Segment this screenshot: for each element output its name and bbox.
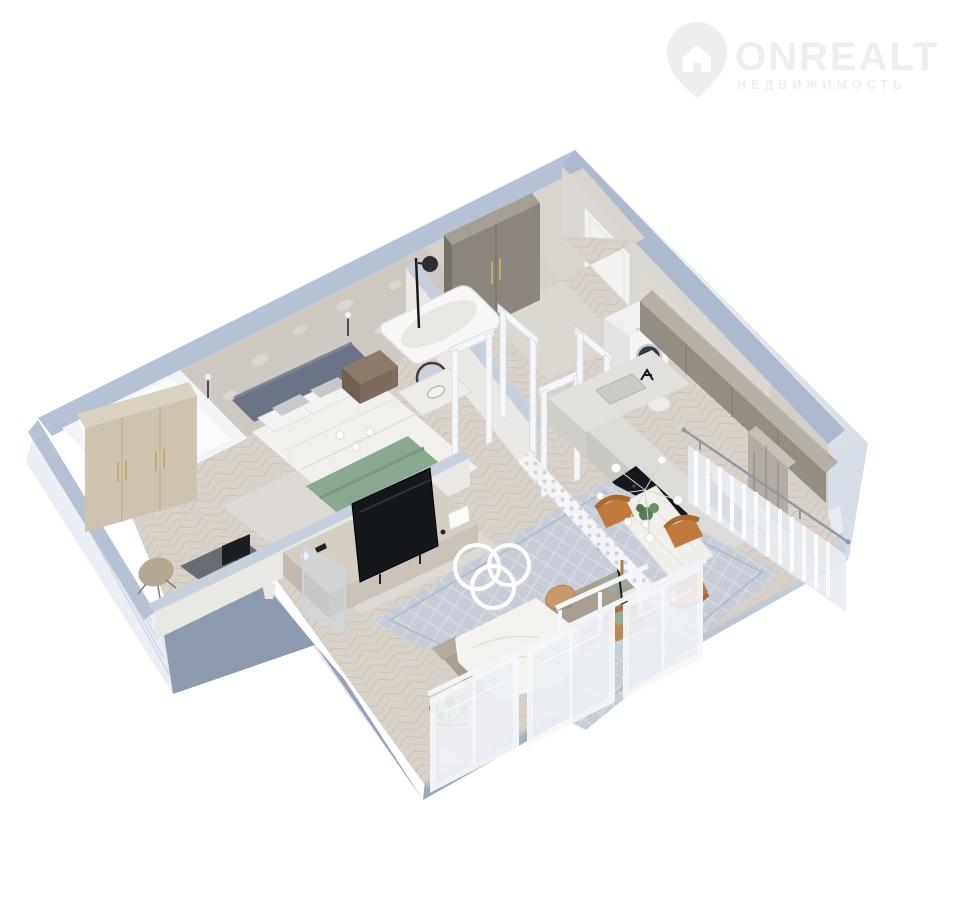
tagline-text: НЕДВИЖИМОСТЬ: [737, 78, 907, 92]
floorplan-render-image: ONREALT НЕДВИЖИМОСТЬ: [0, 0, 960, 910]
brand-text: ONREALT: [735, 35, 939, 79]
shower-head: [422, 256, 438, 272]
watermark-logo: ONREALT НЕДВИЖИМОСТЬ: [667, 22, 939, 98]
floorplan-canvas: ONREALT НЕДВИЖИМОСТЬ: [0, 0, 960, 910]
